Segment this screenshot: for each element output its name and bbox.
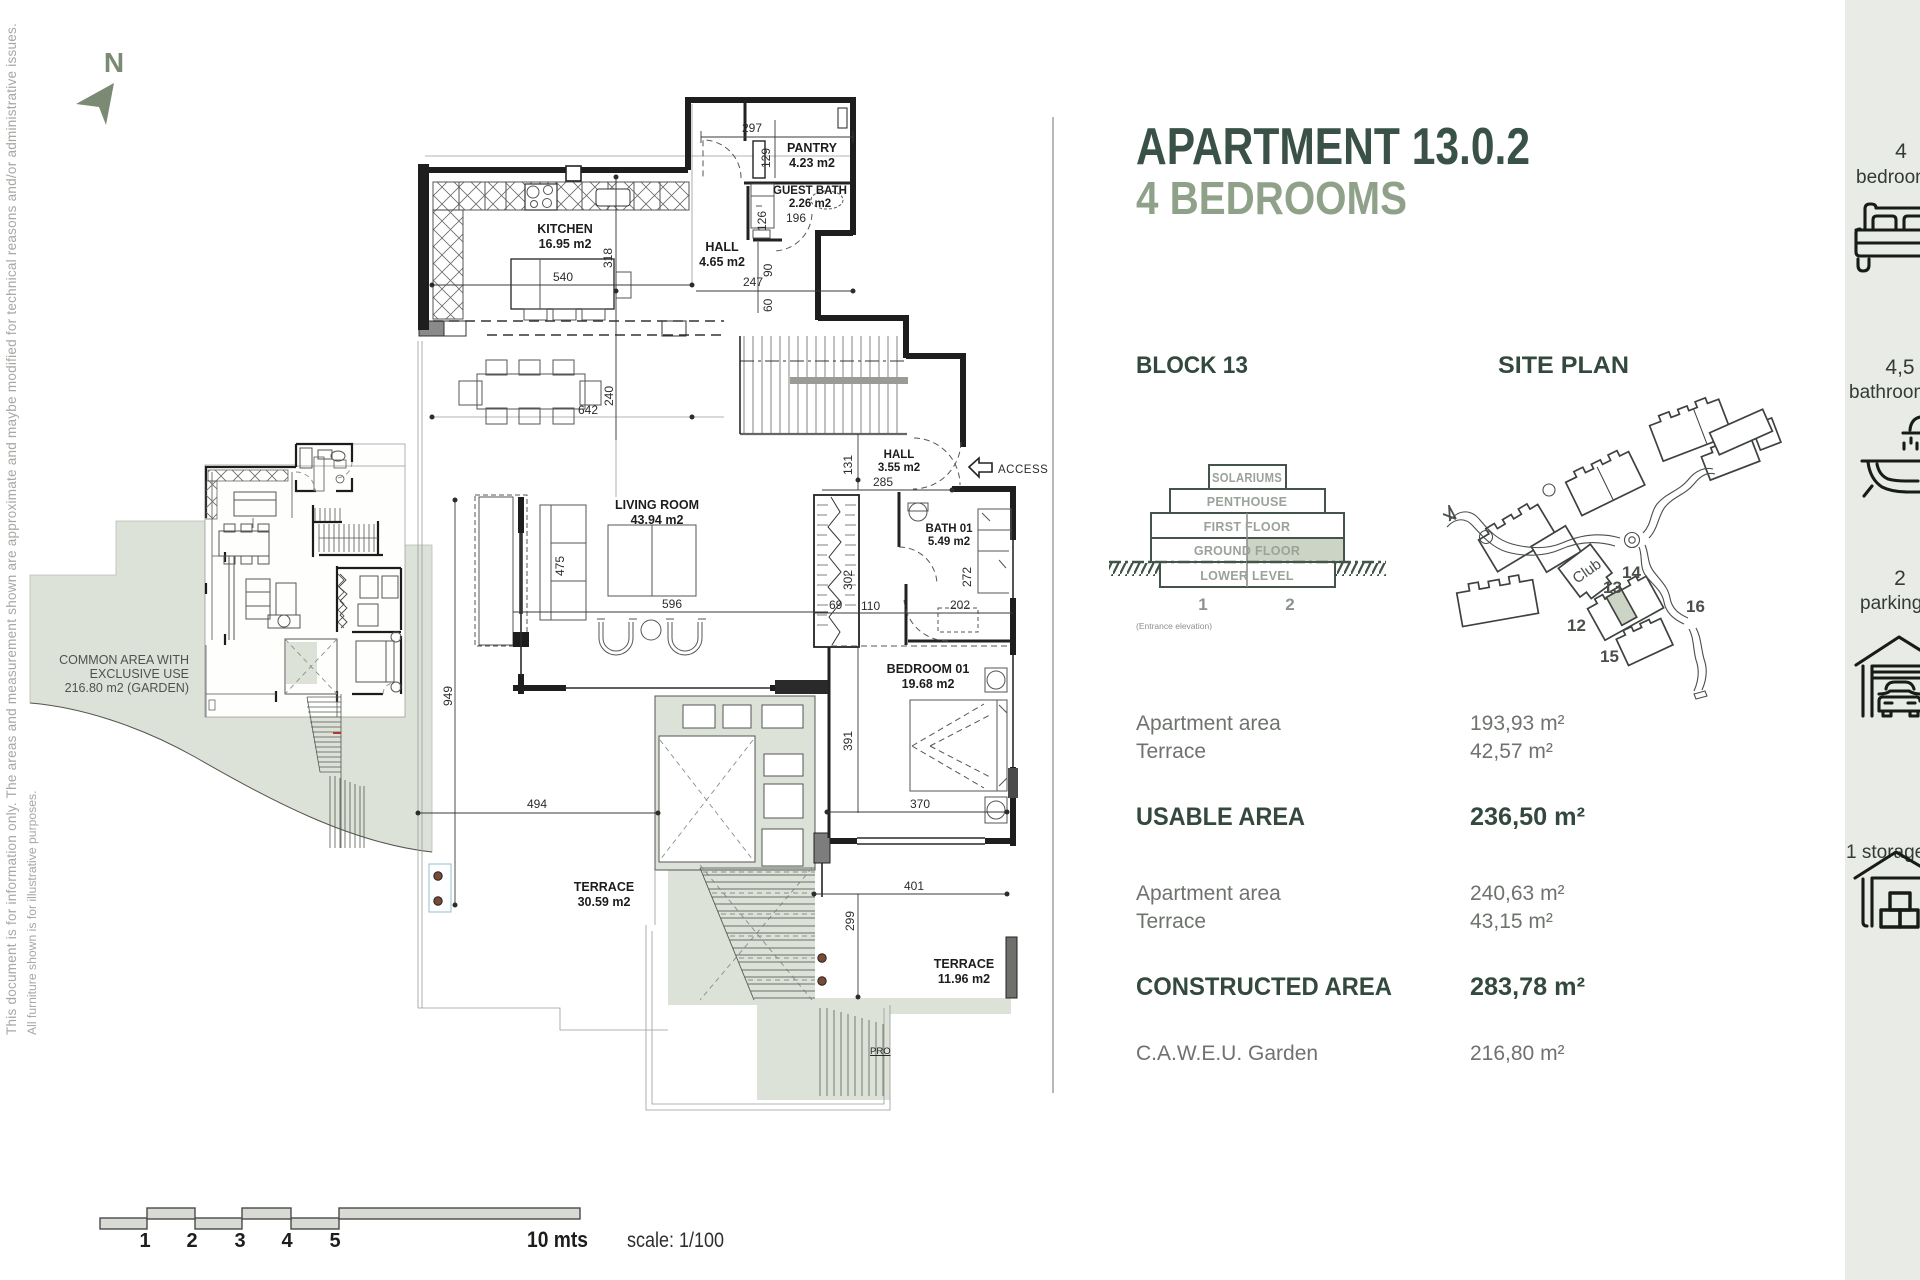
svg-text:Terrace: Terrace [1136,910,1206,933]
svg-text:COMMON AREA WITH: COMMON AREA WITH [59,653,189,667]
svg-text:11.96 m2: 11.96 m2 [938,972,990,986]
svg-text:BLOCK 13: BLOCK 13 [1136,352,1248,379]
svg-text:19.68 m2: 19.68 m2 [902,677,955,691]
svg-text:SITE PLAN: SITE PLAN [1498,352,1629,379]
svg-text:302: 302 [841,570,855,590]
svg-text:BEDROOM 01: BEDROOM 01 [887,662,970,676]
svg-text:43,15 m²: 43,15 m² [1470,910,1553,933]
svg-text:This document is for informati: This document is for information only. T… [4,23,19,1035]
svg-text:4.65 m2: 4.65 m2 [699,255,745,269]
svg-text:PRO: PRO [870,1046,891,1057]
svg-text:69: 69 [829,598,843,612]
svg-text:283,78 m²: 283,78 m² [1470,973,1585,1001]
svg-text:370: 370 [910,797,930,811]
svg-text:1: 1 [1198,595,1207,614]
svg-text:(Entrance elevation): (Entrance elevation) [1136,621,1212,631]
svg-text:14: 14 [1622,563,1641,582]
svg-text:949: 949 [441,686,455,706]
svg-text:4: 4 [1895,140,1907,163]
svg-text:642: 642 [578,403,598,417]
svg-text:HALL: HALL [705,240,739,254]
svg-text:494: 494 [527,797,547,811]
svg-text:SOLARIUMS: SOLARIUMS [1212,471,1282,485]
svg-text:3: 3 [234,1230,245,1252]
svg-text:90: 90 [761,263,775,277]
svg-text:CONSTRUCTED AREA: CONSTRUCTED AREA [1136,973,1392,1001]
svg-text:193,93 m²: 193,93 m² [1470,712,1565,735]
svg-text:202: 202 [950,598,970,612]
svg-text:272: 272 [960,567,974,587]
svg-text:391: 391 [841,731,855,751]
svg-text:10 mts: 10 mts [527,1227,588,1252]
svg-text:110: 110 [861,599,880,613]
svg-text:Terrace: Terrace [1136,740,1206,763]
svg-text:318: 318 [601,248,615,268]
svg-text:KITCHEN: KITCHEN [537,222,593,236]
svg-text:475: 475 [553,556,567,576]
svg-text:12: 12 [1567,616,1586,635]
svg-text:240: 240 [602,386,616,406]
svg-text:297: 297 [742,121,762,135]
svg-text:30.59 m2: 30.59 m2 [578,895,631,909]
svg-text:3.55 m2: 3.55 m2 [878,462,920,474]
svg-text:TERRACE: TERRACE [934,957,994,971]
svg-text:13: 13 [1603,578,1622,597]
svg-text:USABLE AREA: USABLE AREA [1136,803,1305,831]
svg-text:Apartment area: Apartment area [1136,712,1281,735]
svg-text:APARTMENT 13.0.2: APARTMENT 13.0.2 [1136,118,1530,176]
svg-text:TERRACE: TERRACE [574,880,634,894]
svg-text:236,50 m²: 236,50 m² [1470,803,1585,831]
svg-text:GUEST BATH: GUEST BATH [773,185,847,197]
svg-text:PENTHOUSE: PENTHOUSE [1207,495,1288,509]
svg-text:240,63 m²: 240,63 m² [1470,882,1565,905]
svg-text:285: 285 [873,475,893,489]
svg-text:4: 4 [281,1230,293,1252]
svg-text:EXCLUSIVE USE: EXCLUSIVE USE [90,667,189,681]
svg-text:129: 129 [759,148,773,168]
svg-text:2: 2 [186,1230,197,1252]
svg-text:scale: 1/100: scale: 1/100 [627,1229,724,1252]
svg-text:2.26 m2: 2.26 m2 [789,198,831,210]
svg-text:All furniture shown is for ill: All furniture shown is for illustrative … [25,790,39,1035]
svg-text:16.95 m2: 16.95 m2 [539,237,592,251]
svg-text:2: 2 [1285,595,1294,614]
svg-text:2: 2 [1894,567,1906,590]
svg-text:196: 196 [786,211,806,225]
svg-text:15: 15 [1600,647,1619,666]
svg-text:LOWER LEVEL: LOWER LEVEL [1200,569,1294,583]
svg-text:42,57 m²: 42,57 m² [1470,740,1553,763]
svg-text:bedrooms: bedrooms [1856,167,1920,188]
svg-text:43.94 m2: 43.94 m2 [631,513,684,527]
svg-text:BATH 01: BATH 01 [925,523,973,535]
svg-text:4 BEDROOMS: 4 BEDROOMS [1136,172,1407,224]
svg-text:16: 16 [1686,597,1705,616]
svg-text:4,5: 4,5 [1885,356,1914,379]
svg-text:1: 1 [139,1230,150,1252]
svg-text:5.49 m2: 5.49 m2 [928,536,970,548]
svg-text:126: 126 [755,211,769,231]
svg-text:N: N [104,47,124,78]
svg-text:Apartment area: Apartment area [1136,882,1281,905]
svg-text:401: 401 [904,879,924,893]
svg-text:596: 596 [662,597,682,611]
svg-text:GROUND FLOOR: GROUND FLOOR [1194,544,1300,558]
svg-text:5: 5 [329,1230,340,1252]
svg-text:216,80 m²: 216,80 m² [1470,1042,1565,1065]
svg-text:HALL: HALL [884,449,915,461]
svg-text:C.A.W.E.U. Garden: C.A.W.E.U. Garden [1136,1042,1318,1065]
svg-text:FIRST FLOOR: FIRST FLOOR [1204,520,1291,534]
svg-text:PANTRY: PANTRY [787,141,838,155]
svg-text:216.80 m2 (GARDEN): 216.80 m2 (GARDEN) [65,681,189,695]
svg-text:540: 540 [553,270,573,284]
svg-text:LIVING ROOM: LIVING ROOM [615,498,699,512]
svg-text:131: 131 [841,455,855,475]
svg-text:ACCESS: ACCESS [998,464,1048,476]
svg-text:4.23 m2: 4.23 m2 [789,156,835,170]
svg-text:299: 299 [843,911,857,931]
svg-text:parking: parking [1860,593,1920,614]
svg-text:bathrooms: bathrooms [1849,382,1920,403]
svg-text:60: 60 [761,298,775,312]
